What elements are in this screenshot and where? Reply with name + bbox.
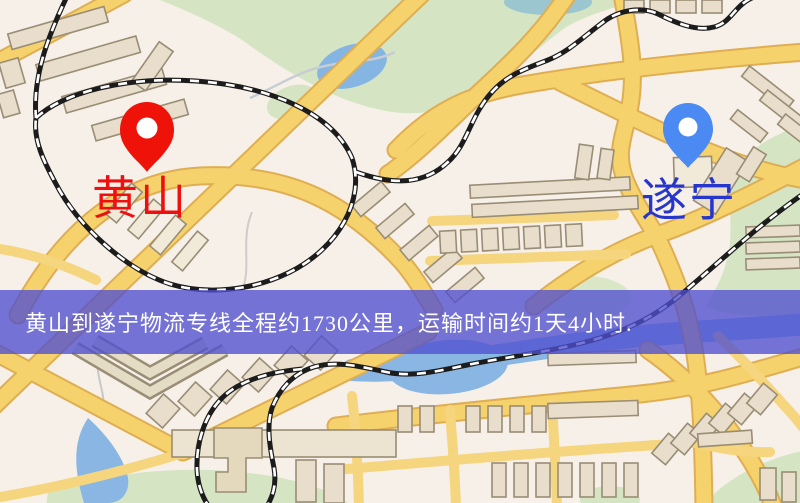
map-canvas[interactable] (0, 0, 800, 503)
route-info-banner: 黄山到遂宁物流专线全程约1730公里，运输时间约1天4小时. (0, 290, 800, 354)
route-info-text: 黄山到遂宁物流专线全程约1730公里，运输时间约1天4小时. (0, 306, 633, 338)
logistics-route-map: 黄山 遂宁 黄山到遂宁物流专线全程约1730公里，运输时间约1天4小时. (0, 0, 800, 503)
